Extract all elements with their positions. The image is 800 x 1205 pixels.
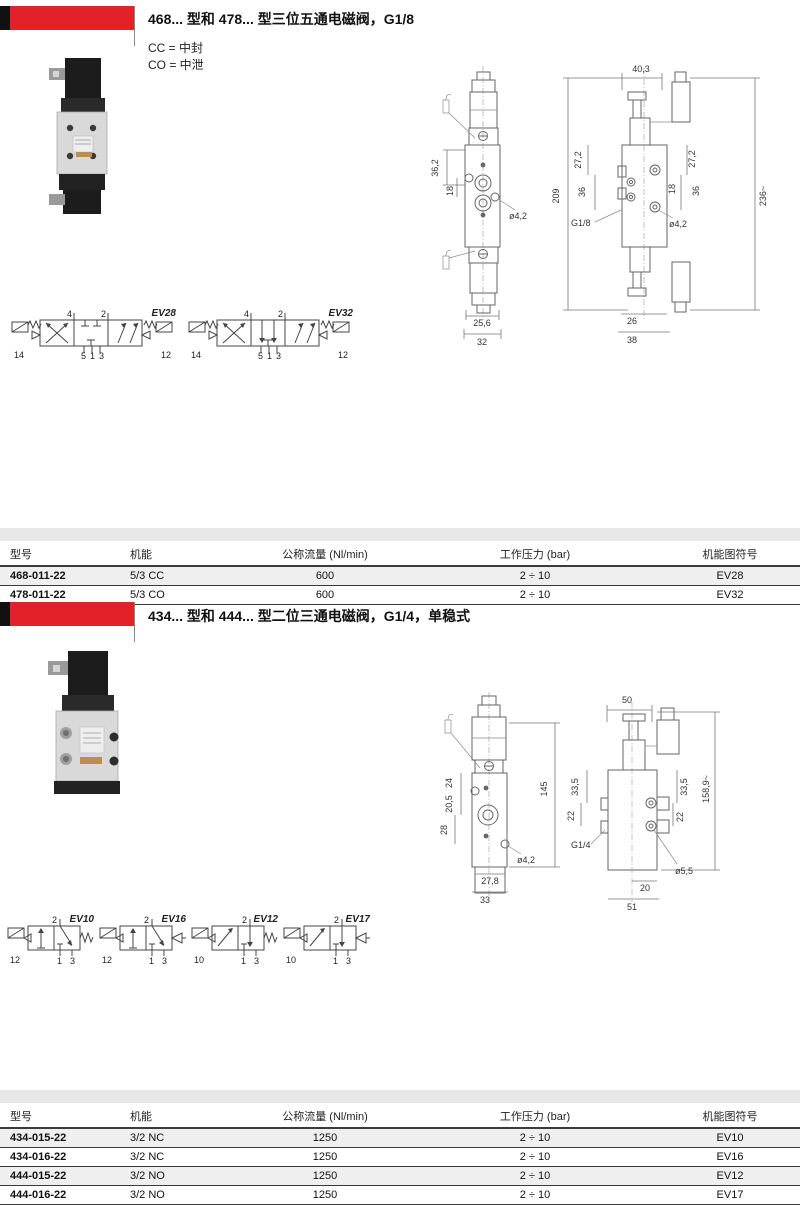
port-label: 2 bbox=[101, 309, 106, 319]
table-header-row: 型号 机能 公称流量 (Nl/min) 工作压力 (bar) 机能图符号 bbox=[0, 1106, 800, 1128]
port-label: 1 bbox=[149, 956, 154, 966]
cell-pressure: 2 ÷ 10 bbox=[410, 1128, 660, 1148]
dim-label: ø5,5 bbox=[675, 866, 693, 876]
symbol-label: EV10 bbox=[70, 914, 95, 925]
col-header-pressure: 工作压力 (bar) bbox=[410, 1106, 660, 1128]
port-label: 4 bbox=[244, 309, 249, 319]
port-label: 5 bbox=[258, 351, 263, 361]
thread-label: G1/8 bbox=[571, 218, 591, 228]
table-header-row: 型号 机能 公称流量 (Nl/min) 工作压力 (bar) 机能图符号 bbox=[0, 544, 800, 566]
col-header-pressure: 工作压力 (bar) bbox=[410, 544, 660, 566]
cell-pressure: 2 ÷ 10 bbox=[410, 1148, 660, 1167]
cell-model: 434-016-22 bbox=[0, 1148, 120, 1167]
port-label: 2 bbox=[52, 915, 57, 925]
thread-label: G1/4 bbox=[571, 840, 591, 850]
cell-symbol: EV28 bbox=[660, 566, 800, 586]
dimension-drawing-434: 24 20,5 28 ø4,2 145 27,8 33 50 33,5 22 G… bbox=[425, 688, 800, 912]
dim-label: 236~ bbox=[758, 186, 768, 206]
dim-label: 36,2 bbox=[430, 159, 440, 177]
port-label: 10 bbox=[194, 955, 204, 965]
cell-pressure: 2 ÷ 10 bbox=[410, 566, 660, 586]
port-label: 10 bbox=[286, 955, 296, 965]
col-header-flow: 公称流量 (Nl/min) bbox=[240, 544, 410, 566]
port-label: 12 bbox=[338, 350, 348, 360]
dim-label: 18 bbox=[445, 186, 455, 196]
port-label: 3 bbox=[99, 351, 104, 361]
symbol-label: EV17 bbox=[346, 914, 371, 925]
product-photo-valve-434 bbox=[36, 645, 136, 795]
col-header-model: 型号 bbox=[0, 544, 120, 566]
pneumatic-symbol-ev10: EV10 2 12 1 3 bbox=[4, 910, 96, 966]
dim-label: ø4,2 bbox=[669, 219, 687, 229]
symbol-label: EV12 bbox=[254, 914, 279, 925]
table-row: 444-016-22 3/2 NO 1250 2 ÷ 10 EV17 bbox=[0, 1186, 800, 1205]
port-label: 1 bbox=[57, 956, 62, 966]
dim-label: 22 bbox=[675, 812, 685, 822]
dim-label: 36 bbox=[691, 186, 701, 196]
cell-model: 434-015-22 bbox=[0, 1128, 120, 1148]
cell-flow: 1250 bbox=[240, 1128, 410, 1148]
dim-label: 18 bbox=[667, 184, 677, 194]
dim-label: 32 bbox=[477, 337, 487, 347]
port-label: 5 bbox=[81, 351, 86, 361]
port-label: 1 bbox=[90, 351, 95, 361]
dim-label: 50 bbox=[622, 695, 632, 705]
spec-table-468: 型号 机能 公称流量 (Nl/min) 工作压力 (bar) 机能图符号 468… bbox=[0, 528, 800, 605]
dim-label: 158,9~ bbox=[701, 775, 711, 803]
cell-function: 5/3 CO bbox=[120, 586, 240, 605]
cell-pressure: 2 ÷ 10 bbox=[410, 1167, 660, 1186]
table-row: 468-011-22 5/3 CC 600 2 ÷ 10 EV28 bbox=[0, 566, 800, 586]
col-header-function: 机能 bbox=[120, 1106, 240, 1128]
black-notch bbox=[0, 6, 10, 30]
lower-coil bbox=[63, 190, 101, 214]
dim-label: 33,5 bbox=[570, 778, 580, 796]
port-label: 1 bbox=[333, 956, 338, 966]
section2-title: 434... 型和 444... 型二位三通电磁阀，G1/4，单稳式 bbox=[148, 606, 470, 626]
symbol-label: EV32 bbox=[329, 308, 354, 319]
table-top-band bbox=[0, 1090, 800, 1103]
cell-symbol: EV12 bbox=[660, 1167, 800, 1186]
dim-label: 27,2 bbox=[687, 150, 697, 168]
port-label: 3 bbox=[346, 956, 351, 966]
dim-label: 27,2 bbox=[573, 151, 583, 169]
dim-label: 209 bbox=[551, 188, 561, 203]
cell-model: 444-016-22 bbox=[0, 1186, 120, 1205]
port-label: 2 bbox=[144, 915, 149, 925]
table-row: 434-016-22 3/2 NC 1250 2 ÷ 10 EV16 bbox=[0, 1148, 800, 1167]
cell-pressure: 2 ÷ 10 bbox=[410, 586, 660, 605]
port-label: 3 bbox=[254, 956, 259, 966]
dim-label: ø4,2 bbox=[517, 855, 535, 865]
legend-cc: CC = 中封 bbox=[148, 40, 203, 57]
port-label: 2 bbox=[334, 915, 339, 925]
pneumatic-symbol-ev28: EV28 4 2 14 5 1 3 12 bbox=[6, 308, 178, 362]
cell-symbol: EV17 bbox=[660, 1186, 800, 1205]
cell-function: 3/2 NC bbox=[120, 1128, 240, 1148]
dim-label: 33 bbox=[480, 895, 490, 905]
cell-flow: 600 bbox=[240, 566, 410, 586]
table-row: 434-015-22 3/2 NC 1250 2 ÷ 10 EV10 bbox=[0, 1128, 800, 1148]
cell-symbol: EV10 bbox=[660, 1128, 800, 1148]
dim-label: 40,3 bbox=[632, 64, 650, 74]
cell-model: 444-015-22 bbox=[0, 1167, 120, 1186]
cell-symbol: EV16 bbox=[660, 1148, 800, 1167]
cell-flow: 600 bbox=[240, 586, 410, 605]
section1-red-header-bar bbox=[0, 6, 134, 30]
dim-label: 38 bbox=[627, 335, 637, 345]
port-label: 1 bbox=[241, 956, 246, 966]
col-header-symbol: 机能图符号 bbox=[660, 1106, 800, 1128]
port-label: 2 bbox=[242, 915, 247, 925]
cell-function: 3/2 NC bbox=[120, 1148, 240, 1167]
dim-label: 20 bbox=[640, 883, 650, 893]
dim-label: 26 bbox=[627, 316, 637, 326]
col-header-function: 机能 bbox=[120, 544, 240, 566]
dim-label: 20,5 bbox=[444, 795, 454, 813]
dim-label: 36 bbox=[577, 187, 587, 197]
cell-function: 3/2 NO bbox=[120, 1186, 240, 1205]
dim-label: 33,5 bbox=[679, 778, 689, 796]
cell-function: 5/3 CC bbox=[120, 566, 240, 586]
port-label: 1 bbox=[267, 351, 272, 361]
cell-function: 3/2 NO bbox=[120, 1167, 240, 1186]
pneumatic-symbol-ev17: EV17 2 10 1 3 bbox=[280, 910, 372, 966]
dim-label: 28 bbox=[439, 825, 449, 835]
header-divider-line bbox=[134, 602, 135, 642]
dim-label: 25,6 bbox=[473, 318, 491, 328]
cell-flow: 1250 bbox=[240, 1148, 410, 1167]
dim-label: 145 bbox=[539, 781, 549, 796]
legend-co: CO = 中泄 bbox=[148, 57, 204, 74]
black-notch bbox=[0, 602, 10, 626]
symbol-label: EV16 bbox=[162, 914, 187, 925]
pneumatic-symbol-ev16: EV16 2 12 1 3 bbox=[96, 910, 188, 966]
header-divider-line bbox=[134, 6, 135, 46]
port-label: 4 bbox=[67, 309, 72, 319]
product-photo-valve-468 bbox=[43, 52, 125, 220]
port-label: 12 bbox=[161, 350, 171, 360]
cell-flow: 1250 bbox=[240, 1167, 410, 1186]
col-header-flow: 公称流量 (Nl/min) bbox=[240, 1106, 410, 1128]
cell-flow: 1250 bbox=[240, 1186, 410, 1205]
dim-label: ø4,2 bbox=[509, 211, 527, 221]
cell-model: 468-011-22 bbox=[0, 566, 120, 586]
symbol-label: EV28 bbox=[152, 308, 177, 319]
valve-base bbox=[54, 781, 120, 794]
table-row: 444-015-22 3/2 NO 1250 2 ÷ 10 EV12 bbox=[0, 1167, 800, 1186]
dimension-drawing-468: 36,2 18 ø4,2 25,6 32 40,3 209 27,2 36 G1… bbox=[425, 58, 800, 360]
dim-label: 27,8 bbox=[481, 876, 499, 886]
section2-red-header-bar bbox=[0, 602, 134, 626]
table-top-band bbox=[0, 528, 800, 541]
port-label: 12 bbox=[102, 955, 112, 965]
col-header-symbol: 机能图符号 bbox=[660, 544, 800, 566]
dim-label: 22 bbox=[566, 811, 576, 821]
port-label: 14 bbox=[191, 350, 201, 360]
port-label: 12 bbox=[10, 955, 20, 965]
port-label: 3 bbox=[162, 956, 167, 966]
dim-label: 24 bbox=[444, 778, 454, 788]
dim-label: 51 bbox=[627, 902, 637, 912]
upper-coil bbox=[65, 58, 101, 98]
port-label: 3 bbox=[276, 351, 281, 361]
cell-symbol: EV32 bbox=[660, 586, 800, 605]
coil bbox=[68, 651, 108, 695]
pneumatic-symbol-ev12: EV12 2 10 1 3 bbox=[188, 910, 280, 966]
section1-title: 468... 型和 478... 型三位五通电磁阀，G1/8 bbox=[148, 9, 414, 29]
port-label: 14 bbox=[14, 350, 24, 360]
port-label: 3 bbox=[70, 956, 75, 966]
pneumatic-symbol-ev32: EV32 4 2 14 5 1 3 12 bbox=[183, 308, 355, 362]
port-label: 2 bbox=[278, 309, 283, 319]
col-header-model: 型号 bbox=[0, 1106, 120, 1128]
cell-pressure: 2 ÷ 10 bbox=[410, 1186, 660, 1205]
